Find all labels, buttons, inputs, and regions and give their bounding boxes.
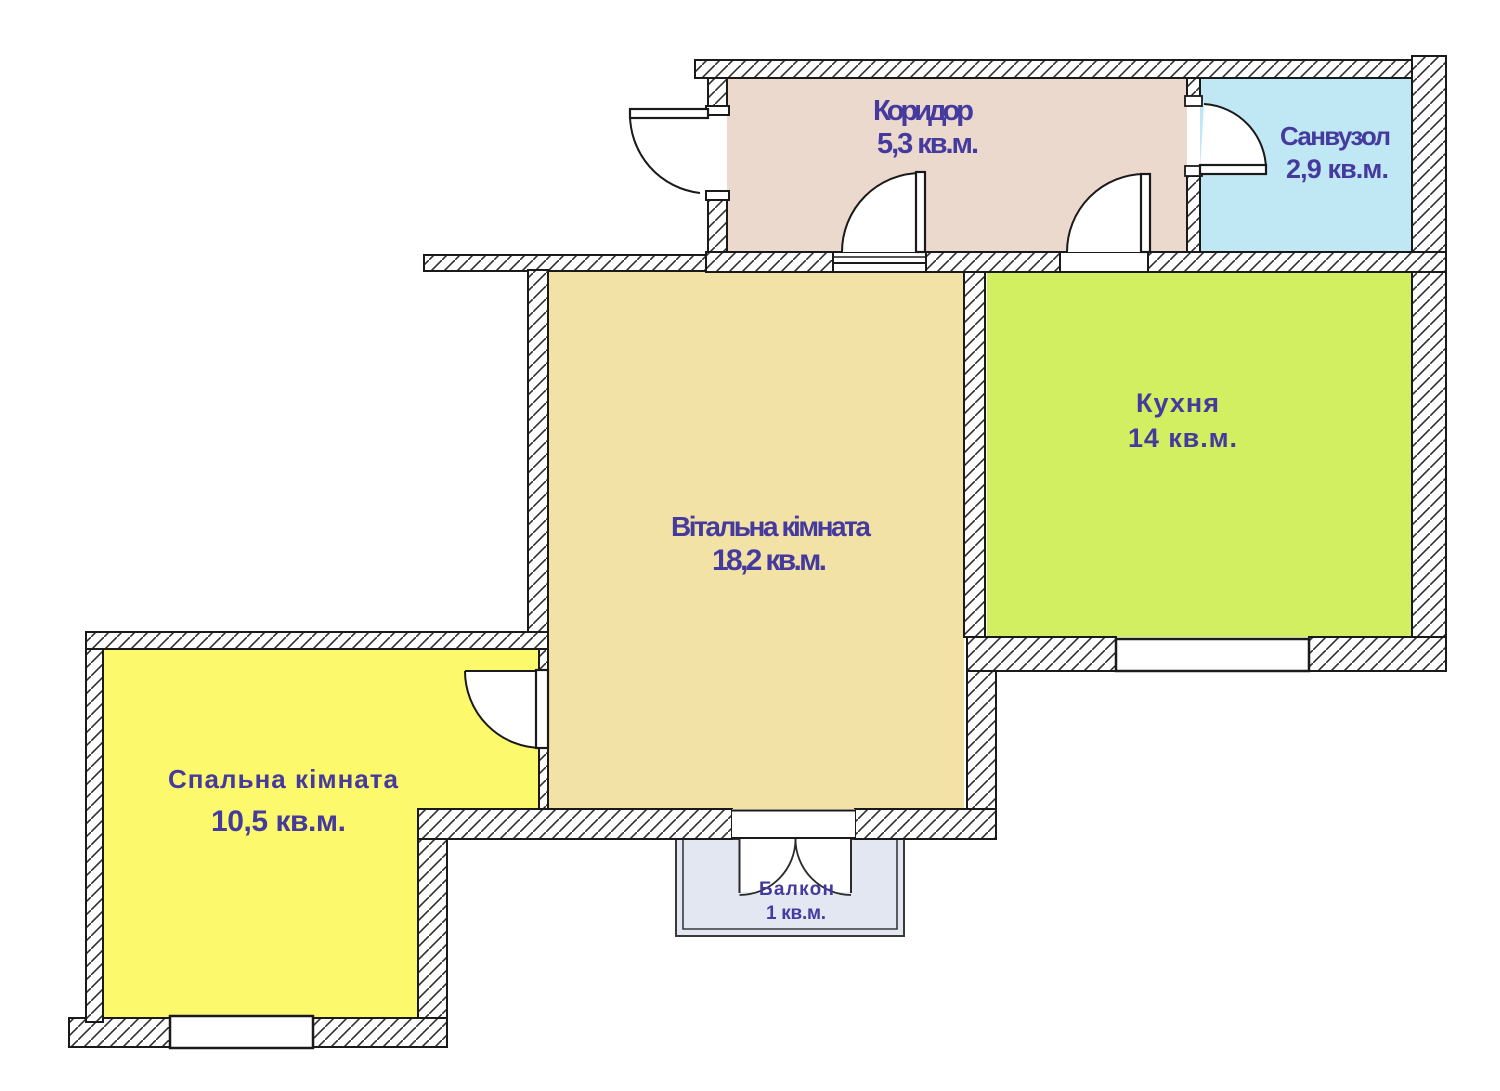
svg-text:14 кв.м.: 14 кв.м. (1128, 423, 1237, 453)
svg-text:2,9 кв.м.: 2,9 кв.м. (1286, 154, 1389, 184)
svg-text:Кухня: Кухня (1136, 388, 1219, 418)
svg-text:Вітальна кімната: Вітальна кімната (671, 511, 871, 542)
svg-text:5,3 кв.м.: 5,3 кв.м. (877, 128, 979, 160)
svg-text:18,2 кв.м.: 18,2 кв.м. (712, 544, 827, 577)
svg-text:Балкон: Балкон (759, 879, 834, 900)
svg-text:1 кв.м.: 1 кв.м. (766, 903, 826, 924)
svg-text:Спальна кімната: Спальна кімната (168, 764, 399, 794)
svg-text:Коридор: Коридор (873, 95, 974, 127)
svg-text:10,5 кв.м.: 10,5 кв.м. (211, 805, 346, 838)
svg-text:Санвузол: Санвузол (1280, 121, 1391, 151)
